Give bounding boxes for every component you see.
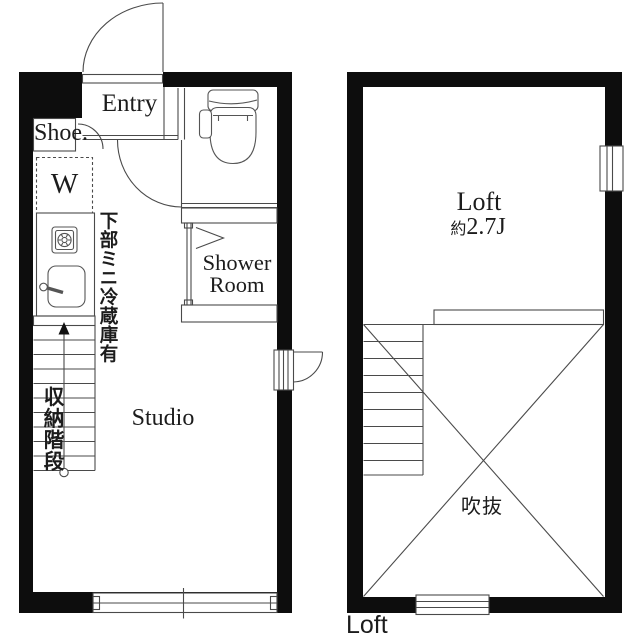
sink-icon (40, 266, 85, 307)
loft-window-right-icon (600, 146, 623, 191)
shower-bifold-door-icon (196, 228, 224, 249)
toilet-icon (200, 90, 259, 164)
front-door-icon (83, 3, 164, 83)
loft-caption: Loft (346, 611, 388, 639)
shower-room-line2: Room (209, 272, 264, 297)
sliding-window-icon (93, 588, 277, 619)
stairs-note: 収納階段 (36, 386, 66, 481)
loft-stairs-icon (364, 325, 424, 476)
interior-door-icon (118, 140, 182, 207)
stove-icon (52, 227, 77, 253)
loft-ledge (434, 310, 604, 325)
shower-room-label: Shower Room (192, 252, 282, 296)
side-door-icon (274, 350, 323, 390)
floorplan-canvas: Entry Shoe. W Shower Room Studio 下部ミニ冷蔵庫… (0, 0, 640, 639)
loft-window-bottom-icon (416, 595, 489, 615)
loft-size-prefix: 約 (450, 221, 466, 238)
washer-label: W (36, 168, 93, 201)
toilet-room-partition (182, 204, 278, 208)
void-label: 吹抜 (442, 490, 522, 519)
loft-size-value: 2.7J (466, 214, 505, 240)
shoe-label: Shoe. (34, 120, 88, 147)
loft-size-label: 約2.7J (428, 214, 528, 241)
fridge-note: 下部ミニ冷蔵庫有 (95, 211, 121, 376)
loft-label: Loft (429, 187, 529, 217)
kitchen-counter (37, 213, 95, 316)
entry-label: Entry (92, 90, 167, 118)
studio-label: Studio (113, 405, 213, 432)
